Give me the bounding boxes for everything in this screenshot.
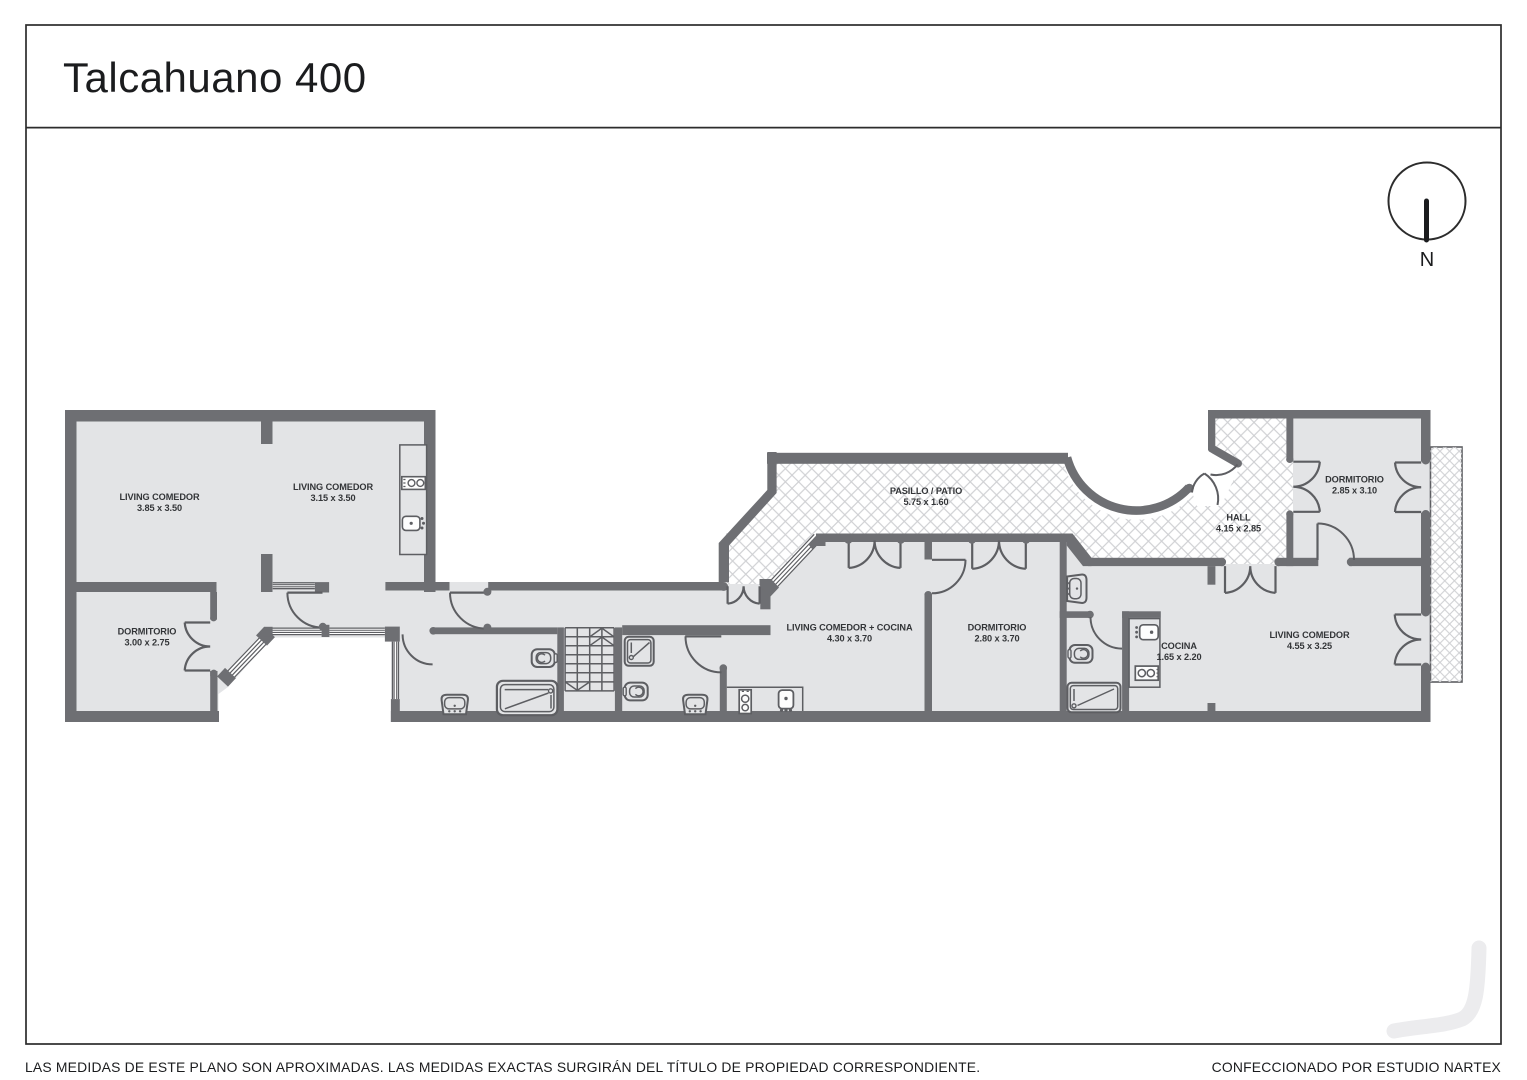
svg-text:2.80 x 3.70: 2.80 x 3.70: [974, 633, 1019, 643]
svg-text:HALL: HALL: [1226, 513, 1251, 523]
svg-text:2.85 x 3.10: 2.85 x 3.10: [1332, 485, 1377, 495]
svg-text:COCINA: COCINA: [1161, 641, 1197, 651]
svg-text:DORMITORIO: DORMITORIO: [1325, 475, 1384, 485]
svg-text:DORMITORIO: DORMITORIO: [968, 623, 1027, 633]
svg-text:3.85 x 3.50: 3.85 x 3.50: [137, 503, 182, 513]
svg-text:LIVING COMEDOR: LIVING COMEDOR: [293, 482, 373, 492]
svg-text:4.55 x 3.25: 4.55 x 3.25: [1287, 641, 1332, 651]
svg-text:3.15 x 3.50: 3.15 x 3.50: [310, 493, 355, 503]
svg-text:DORMITORIO: DORMITORIO: [118, 627, 177, 637]
svg-text:LAS MEDIDAS DE ESTE PLANO SON: LAS MEDIDAS DE ESTE PLANO SON APROXIMADA…: [25, 1059, 980, 1075]
svg-text:LIVING COMEDOR + COCINA: LIVING COMEDOR + COCINA: [786, 623, 912, 633]
svg-text:4.15 x 2.85: 4.15 x 2.85: [1216, 523, 1261, 533]
svg-text:N: N: [1420, 249, 1434, 271]
svg-text:3.00 x 2.75: 3.00 x 2.75: [124, 637, 169, 647]
svg-text:1.65 x 2.20: 1.65 x 2.20: [1156, 652, 1201, 662]
svg-text:CONFECCIONADO POR ESTUDIO NART: CONFECCIONADO POR ESTUDIO NARTEX: [1212, 1059, 1501, 1075]
svg-text:LIVING COMEDOR: LIVING COMEDOR: [1269, 630, 1349, 640]
svg-text:LIVING COMEDOR: LIVING COMEDOR: [119, 492, 199, 502]
svg-text:Talcahuano 400: Talcahuano 400: [63, 54, 367, 101]
svg-text:PASILLO / PATIO: PASILLO / PATIO: [890, 486, 962, 496]
svg-text:5.75 x 1.60: 5.75 x 1.60: [903, 497, 948, 507]
svg-text:4.30 x 3.70: 4.30 x 3.70: [827, 633, 872, 643]
